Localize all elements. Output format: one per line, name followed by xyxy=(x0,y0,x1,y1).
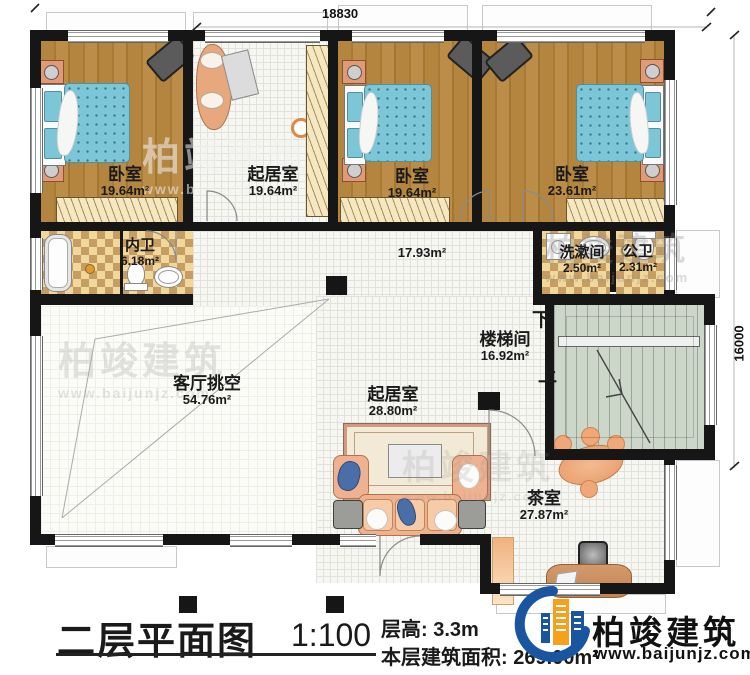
window xyxy=(55,534,163,547)
terrace-sill xyxy=(676,460,720,567)
room-name: 茶室 xyxy=(520,489,568,508)
room-label-wash: 洗漱间 2.50m² xyxy=(559,245,604,275)
window xyxy=(664,465,677,560)
pillow xyxy=(434,510,457,531)
wall xyxy=(183,41,193,231)
wall xyxy=(480,534,491,594)
window xyxy=(30,238,43,290)
wall xyxy=(326,276,347,295)
room-area: 23.61m² xyxy=(548,184,596,199)
window xyxy=(664,238,677,290)
room-label-bedroom2: 卧室 19.64m² xyxy=(388,167,436,201)
end-table xyxy=(458,500,486,529)
nightstand xyxy=(342,60,366,84)
drawing-scale: 1:100 xyxy=(291,617,371,654)
chair xyxy=(200,92,224,109)
room-name: 起居室 xyxy=(248,165,299,184)
wardrobe xyxy=(566,198,666,223)
room-name: 公卫 xyxy=(619,244,657,261)
sink-icon xyxy=(154,266,183,288)
room-label-stairwell: 楼梯间 16.92m² xyxy=(480,330,531,364)
wardrobe xyxy=(340,197,450,223)
terrace-sill xyxy=(482,5,652,33)
wall xyxy=(533,231,542,294)
tea-stool xyxy=(580,480,598,498)
void-floor xyxy=(41,306,316,534)
wall xyxy=(545,449,715,460)
floor-plan-canvas: ✿ 卧室 19.64m² 起居室 19.64m² 卧室 19.64m² 卧室 2… xyxy=(0,0,750,675)
room-name: 起居室 xyxy=(368,385,419,404)
end-table xyxy=(333,500,363,529)
room-area: 27.87m² xyxy=(520,508,568,523)
dimension-top: 18830 xyxy=(322,6,358,21)
stair-up-mark: 上 xyxy=(538,360,557,387)
wall xyxy=(328,41,338,231)
room-area: 19.64m² xyxy=(388,186,436,201)
room-label-tea: 茶室 27.87m² xyxy=(520,489,568,523)
pillow xyxy=(366,508,388,530)
room-name: 卧室 xyxy=(101,165,149,184)
room-area: 19.64m² xyxy=(248,184,299,199)
wardrobe xyxy=(306,45,330,217)
window xyxy=(30,88,43,193)
toilet-tank xyxy=(632,231,656,239)
room-name: 洗漱间 xyxy=(559,245,604,262)
window xyxy=(497,30,645,43)
room-label-bedroom3: 卧室 23.61m² xyxy=(548,165,596,199)
pillow xyxy=(458,463,480,489)
window xyxy=(205,30,320,43)
room-area: 54.76m² xyxy=(173,393,241,408)
room-name: 内卫 xyxy=(121,238,159,255)
terrace-sill xyxy=(46,546,177,568)
chair xyxy=(200,52,224,69)
toilet-tank xyxy=(124,283,148,291)
room-label-void: 客厅挑空 54.76m² xyxy=(173,374,241,408)
room-label-bedroom1: 卧室 19.64m² xyxy=(101,165,149,199)
hall-area-label: 17.93m² xyxy=(398,246,446,261)
drawing-title: 二层平面图 xyxy=(57,610,257,665)
room-area: 16.92m² xyxy=(480,349,531,364)
room-name: 卧室 xyxy=(388,167,436,186)
room-label-study: 起居室 19.64m² xyxy=(248,165,299,199)
wall xyxy=(326,596,344,613)
room-label-living2: 起居室 28.80m² xyxy=(368,385,419,419)
wall xyxy=(610,231,616,292)
wall xyxy=(41,222,664,231)
room-area: 19.64m² xyxy=(101,184,149,199)
title-underline xyxy=(56,653,376,656)
wardrobe xyxy=(56,197,178,224)
wall xyxy=(478,392,500,410)
wall xyxy=(533,294,715,305)
nightstand xyxy=(640,59,664,83)
room-name: 卧室 xyxy=(548,165,596,184)
window xyxy=(230,534,292,547)
window xyxy=(664,80,677,205)
wall xyxy=(472,41,482,231)
stair-down-mark: 下 xyxy=(532,305,551,332)
room-area: 17.93m² xyxy=(398,246,446,261)
window xyxy=(352,30,444,43)
room-name: 楼梯间 xyxy=(480,330,531,349)
drain-icon xyxy=(85,264,95,274)
room-name: 客厅挑空 xyxy=(173,374,241,393)
brand-logo-icon xyxy=(505,583,597,668)
room-label-inner-bath: 内卫 6.18m² xyxy=(121,238,159,268)
room-area: 2.31m² xyxy=(619,261,657,274)
nightstand xyxy=(38,60,64,84)
floor-height-note: 层高: 3.3m xyxy=(381,613,479,642)
window xyxy=(30,336,43,496)
brand-url: www.baijunjz.com xyxy=(594,644,750,664)
stair-inner-outline xyxy=(566,316,694,438)
window xyxy=(704,325,717,425)
room-area: 6.18m² xyxy=(121,255,159,268)
bathtub xyxy=(44,234,72,292)
dimension-right: 16000 xyxy=(732,321,747,367)
hall-floor xyxy=(193,231,533,306)
wall xyxy=(41,294,193,305)
room-area: 2.50m² xyxy=(559,262,604,275)
room-label-public-bath: 公卫 2.31m² xyxy=(619,244,657,274)
terrace-sill xyxy=(676,230,720,298)
coffee-table xyxy=(388,444,442,478)
window xyxy=(340,534,376,547)
window xyxy=(68,30,168,43)
room-area: 28.80m² xyxy=(368,404,419,419)
